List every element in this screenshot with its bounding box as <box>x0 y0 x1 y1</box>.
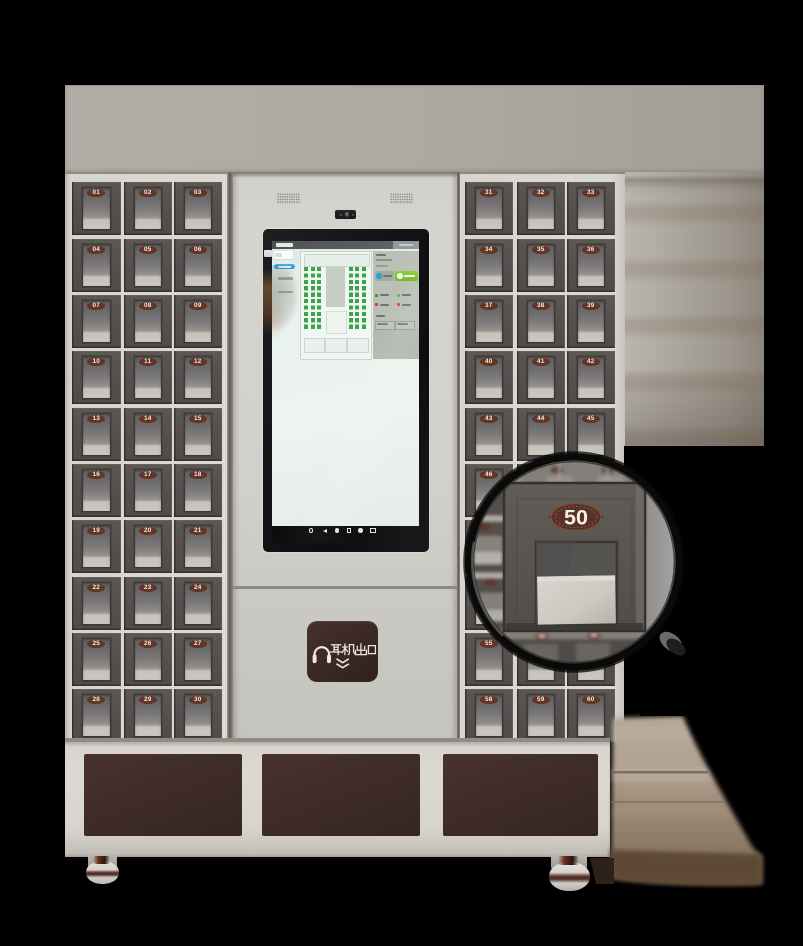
svg-text:50: 50 <box>564 506 588 530</box>
